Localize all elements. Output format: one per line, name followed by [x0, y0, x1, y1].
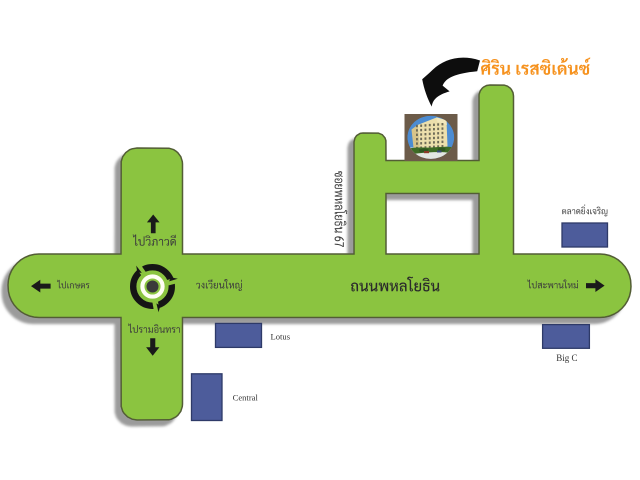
- svg-text:Central: Central: [233, 393, 259, 403]
- svg-text:Big C: Big C: [556, 353, 577, 363]
- svg-text:Lotus: Lotus: [271, 332, 291, 342]
